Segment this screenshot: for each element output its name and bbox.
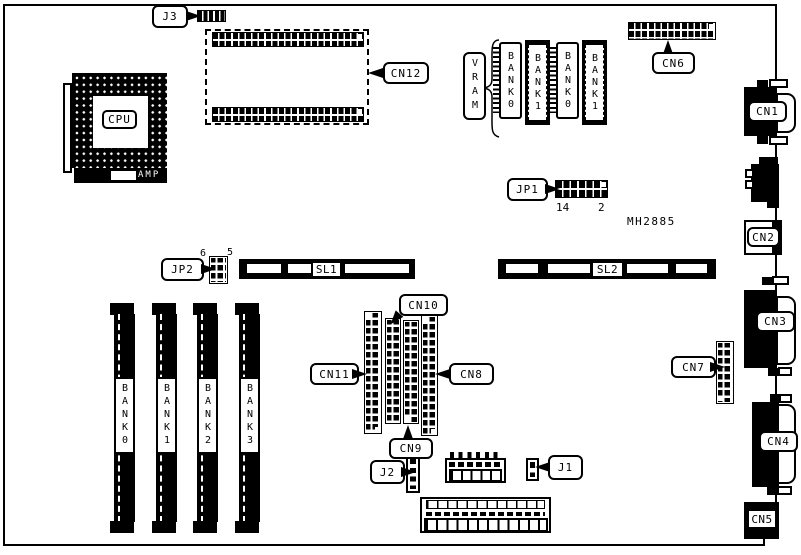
vram-chip1-text: BANK0 <box>506 51 516 111</box>
j3-label: J3 <box>152 5 188 28</box>
vram-label: VRAM <box>463 52 486 120</box>
cn3-label-text: CN3 <box>764 316 787 327</box>
j2-label-text: J2 <box>380 467 395 478</box>
cpu-maker-bar-window <box>111 171 136 180</box>
jp2-pin6-number: 6 <box>200 249 206 259</box>
cn5-label: CN5 <box>747 509 777 529</box>
vram-chip-3: BANK0 <box>556 42 579 119</box>
cn6-pin1 <box>709 24 714 29</box>
simm-label-bank3: BANK3 <box>239 377 260 454</box>
cn9-label-text: CN9 <box>400 443 423 454</box>
jp1-label: JP1 <box>507 178 548 201</box>
vram-chip2-text: BANK1 <box>533 53 543 113</box>
cn3-mount-tab-bottom <box>778 367 792 376</box>
sl1-label-text: SL1 <box>316 264 337 275</box>
simm-label-bank2: BANK2 <box>197 377 218 454</box>
sl2-segment <box>627 264 668 273</box>
jp1-label-text: JP1 <box>516 184 539 195</box>
cn9-array <box>403 320 419 424</box>
sl2-segment <box>676 264 707 273</box>
sl2-label-text: SL2 <box>597 264 618 275</box>
sl2-segment <box>548 264 590 273</box>
cn8-pointer <box>435 369 450 379</box>
cn2-label: CN2 <box>747 227 780 247</box>
cn9-pin1 <box>405 417 410 422</box>
jp2-label: JP2 <box>161 258 204 281</box>
simm-bank2-tab-bottom <box>193 521 217 533</box>
cn8-label-text: CN8 <box>460 369 483 380</box>
jp2-label-text: JP2 <box>171 264 194 275</box>
cn7-pin1 <box>718 396 723 401</box>
cn7-label-text: CN7 <box>682 362 705 373</box>
cpu-maker-label: AMP <box>138 171 160 180</box>
cn11-pin1 <box>366 313 371 318</box>
cn12-pin-strip-top <box>212 32 364 47</box>
cn12-pointer <box>368 68 383 78</box>
part-number: MH2885 <box>627 216 676 227</box>
cn4-mount-tab-bottom <box>777 486 792 495</box>
cn11-label-text: CN11 <box>319 369 350 380</box>
vram-chip2-body: BANK1 <box>528 45 547 120</box>
cn5-label-text: CN5 <box>751 514 772 525</box>
cn1-mount-nub-top <box>757 80 768 88</box>
cn1-mount-nub-bottom <box>757 136 768 144</box>
cn8-label: CN8 <box>449 363 494 385</box>
j2-pointer <box>401 467 416 477</box>
jp2-pin5-number: 5 <box>227 248 233 258</box>
cn9-label: CN9 <box>389 438 433 459</box>
motherboard-diagram: J3 CPU AMP CN12 VRAM BANK0 BANK1 BANK0 B… <box>0 0 801 555</box>
simm-bank1-tab-bottom <box>152 521 176 533</box>
cn9-pointer <box>403 425 413 439</box>
cn11-pointer <box>352 369 367 379</box>
sl1-segment <box>288 264 311 273</box>
cn1-label: CN1 <box>748 101 787 122</box>
cn6-label-text: CN6 <box>662 58 685 69</box>
vram-chip-1: BANK0 <box>499 42 522 119</box>
cn7-pointer <box>710 362 725 372</box>
vram-chip-4: BANK1 <box>582 40 607 125</box>
power12-tabs <box>426 500 545 509</box>
vram-chip-2: BANK1 <box>525 40 550 125</box>
cn10-label: CN10 <box>399 294 448 316</box>
power6-cells <box>449 469 502 482</box>
cn12-label-text: CN12 <box>391 68 422 79</box>
simm-bank0-tab-bottom <box>110 521 134 533</box>
sl2-label: SL2 <box>591 261 624 278</box>
j2-label: J2 <box>370 460 405 484</box>
cn6-label: CN6 <box>652 52 695 74</box>
vram-chip3-text: BANK0 <box>563 51 573 111</box>
cn4-mount-nub-top <box>770 394 779 403</box>
j3-label-text: J3 <box>162 11 177 22</box>
jp1-pin2-marker <box>601 182 606 187</box>
cn8-pin-last <box>431 429 436 434</box>
j3-connector <box>197 10 226 22</box>
j1-label: J1 <box>548 455 583 480</box>
power6-dash <box>449 462 502 467</box>
cn6-pointer <box>663 40 673 54</box>
cn1-label-text: CN1 <box>756 106 779 117</box>
cn3-label: CN3 <box>756 311 795 332</box>
din-notch-1 <box>745 169 754 178</box>
jp2-pointer <box>201 264 216 274</box>
jp1-pin14-number: 14 <box>556 202 569 213</box>
vram-chip4-text: BANK1 <box>590 53 600 113</box>
cn3-mount-nub-top <box>762 277 772 285</box>
power12-cells <box>424 518 548 532</box>
cn3-mount-nub-bottom <box>768 368 778 376</box>
power12-dash <box>426 512 545 516</box>
cn8-pin1 <box>423 317 428 322</box>
cn12-pin1-bottom <box>357 109 362 114</box>
cpu-label: CPU <box>102 110 137 129</box>
cn7-header <box>716 341 734 404</box>
simm-label-bank1: BANK1 <box>156 377 177 454</box>
cn4-mount-nub-bottom <box>767 487 777 495</box>
cpu-socket-lever <box>63 83 72 173</box>
cn4-label-text: CN4 <box>767 436 790 447</box>
cn10-array <box>385 318 401 424</box>
jp1-pointer <box>545 184 560 194</box>
din-connector-bottom <box>767 201 779 208</box>
cn3-mount-tab-top <box>772 276 789 285</box>
sl1-segment <box>247 264 281 273</box>
jp1-pin2-number: 2 <box>598 202 605 213</box>
sl1-label: SL1 <box>311 261 342 278</box>
cn4-mount-tab-top <box>779 394 792 403</box>
j1-label-text: J1 <box>558 462 573 473</box>
cn12-label: CN12 <box>383 62 429 84</box>
cn11-pin-last <box>375 427 380 432</box>
sl1-segment <box>345 264 409 273</box>
simm-bank3-tab-bottom <box>235 521 259 533</box>
cn2-label-text: CN2 <box>752 232 775 243</box>
cn4-label: CN4 <box>759 431 798 452</box>
din-connector <box>751 164 779 202</box>
cn1-mount-tab-top <box>769 79 788 88</box>
cn12-pin-strip-bottom <box>212 107 364 122</box>
simm-label-bank0: BANK0 <box>114 377 135 454</box>
j1-pointer <box>535 462 550 472</box>
sl2-segment <box>506 264 538 273</box>
cn12-pin1-top <box>357 34 362 39</box>
cn10-label-text: CN10 <box>408 300 439 311</box>
cpu-label-text: CPU <box>108 114 131 125</box>
din-notch-2 <box>745 180 754 189</box>
vram-chip4-body: BANK1 <box>585 45 604 120</box>
cn6-pin-strip <box>628 22 716 40</box>
cn1-mount-tab-bottom <box>769 136 788 145</box>
j3-pointer <box>186 11 201 21</box>
